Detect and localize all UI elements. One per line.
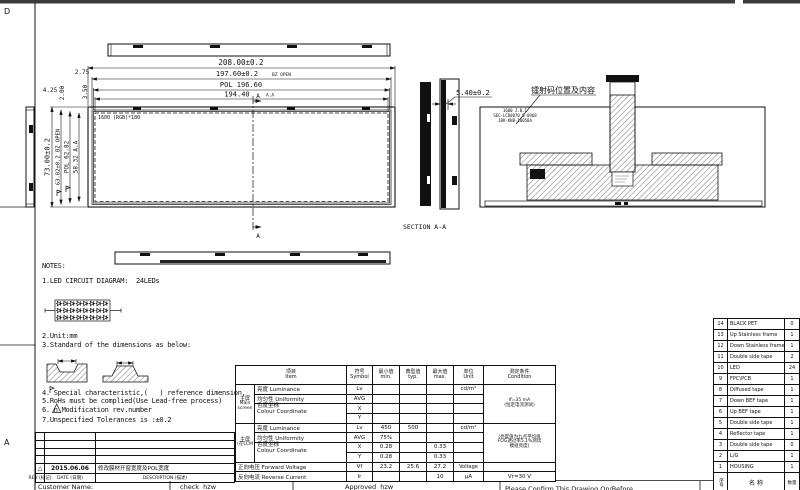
note-led-circuit: 1.LED CIRCUIT DIAGRAM: 24LEDs — [42, 277, 159, 285]
value-cell — [427, 424, 454, 434]
part-no: 7 — [714, 396, 728, 407]
revision-empty-cell — [36, 456, 45, 464]
unit-cell — [454, 404, 484, 414]
dimension-standard-profiles — [47, 359, 148, 382]
symbol-vf: Vf — [347, 463, 373, 473]
revision-empty-cell — [96, 449, 235, 457]
unit-cell — [454, 433, 484, 443]
revision-empty-cell — [96, 433, 235, 441]
header-item: 项目Item — [236, 366, 347, 385]
value-cell — [373, 395, 400, 405]
dim-bz-open-height: 63.82±0.2 BZ OPEN — [56, 129, 62, 185]
value-vf-typ: 25.6 — [400, 463, 427, 473]
chromaticity-en: Colour Coordinate — [257, 449, 307, 455]
revision-empty-cell — [96, 441, 235, 449]
part-qty: 1 — [785, 462, 800, 473]
header-min-en: min. — [380, 375, 391, 380]
revision-empty-cell — [45, 441, 96, 449]
header-condition: 测定条件Condition — [484, 366, 556, 385]
condition-cell — [484, 463, 556, 473]
group2-condition: (亮度值为九点平均值FOG透过率5.1%测试模组亮度) — [484, 424, 556, 463]
unit-voltage: Voltage — [454, 463, 484, 473]
left-side-view — [26, 107, 34, 207]
dim-offset-425: 4.25 — [43, 87, 58, 94]
symbol-lv: Lv — [347, 385, 373, 395]
dim-bz-open-width: 197.60±0.2 — [216, 70, 258, 78]
revision-empty-cell — [45, 449, 96, 457]
zone-letter-a: A — [4, 438, 9, 447]
part-name: Down Stainless frame — [728, 341, 785, 352]
value-cell — [400, 433, 427, 443]
unit-cell — [454, 395, 484, 405]
header-symbol-en: Symbol — [350, 375, 369, 380]
value-avg-min: 75% — [373, 433, 400, 443]
symbol-y: Y — [347, 414, 373, 424]
unit-cell — [454, 443, 484, 453]
revision-date: 2015.06.06 — [45, 464, 96, 473]
revision-header-rev: REV (标记) — [36, 474, 45, 483]
confirm-drawing-note: Please Confirm This Drawing On/Before — [505, 485, 633, 490]
unit-cdm2: cd/m² — [454, 424, 484, 434]
header-max: 最大值max. — [427, 366, 454, 385]
part-qty: 1 — [785, 330, 800, 341]
part-no: 3 — [714, 440, 728, 451]
part-qty: 1 — [785, 451, 800, 462]
dim-offset-275: 2.75 — [75, 69, 90, 76]
note-tolerances: 7.Unspecified Tolerances is :±0.2 — [42, 416, 171, 424]
section-label: SECTION A-A — [403, 223, 446, 231]
zone-letter-d: D — [4, 7, 10, 16]
value-cell — [400, 404, 427, 414]
part-qty: 1 — [785, 429, 800, 440]
part-no: 10 — [714, 363, 728, 374]
unit-cdm2: cd/m² — [454, 385, 484, 395]
part-name: Reflector tape — [728, 429, 785, 440]
value-cell — [400, 385, 427, 395]
part-no: 13 — [714, 330, 728, 341]
part-qty: 0 — [785, 440, 800, 451]
dim-bz-open-width-suffix: BZ OPEN — [272, 72, 291, 78]
row-chromaticity-label: 色度坐标Colour Coordinate — [255, 404, 347, 423]
part-name: FPC\PCB — [728, 374, 785, 385]
row-chromaticity-label: 色度坐标Colour Coordinate — [255, 443, 347, 462]
symbol-y: Y — [347, 453, 373, 463]
part-name: Double side tape — [728, 440, 785, 451]
value-x-min: 0.28 — [373, 443, 400, 453]
part-no: 14 — [714, 319, 728, 330]
section-mark-bottom: A — [256, 233, 260, 240]
row-luminance-label: 亮度 Luminance — [255, 385, 347, 395]
revision-empty-cell — [36, 441, 45, 449]
revision-empty-cell — [36, 433, 45, 441]
header-max-en: max. — [434, 375, 446, 380]
part-no: 9 — [714, 374, 728, 385]
front-view — [88, 107, 395, 207]
dim-aa-width-suffix: A.A — [266, 93, 274, 99]
revision-description: 修改膜材开窗宽度及POL宽度 — [96, 464, 235, 473]
value-lv-min: 450 — [373, 424, 400, 434]
group2-label-en: (在LCM — [237, 443, 253, 448]
note-rohs: 5.RoHs must be complied(Use Lead-free pr… — [42, 397, 222, 405]
part-no: 12 — [714, 341, 728, 352]
revision-header-description: DESCRIPTION (描述) — [96, 474, 235, 483]
value-cell — [427, 385, 454, 395]
value-x-max: 0.33 — [427, 443, 454, 453]
dim-offset-350: 3.50 — [82, 84, 89, 99]
parts-header-name: 名 称 — [728, 473, 785, 490]
dim-outer-width: 208.00±0.2 — [218, 58, 263, 67]
part-qty: 1 — [785, 385, 800, 396]
unit-cell — [454, 414, 484, 424]
header-condition-en: Condition — [508, 375, 532, 380]
group1-label-en: Main screen — [236, 402, 254, 411]
bottom-view — [115, 252, 390, 264]
part-name: LED — [728, 363, 785, 374]
group1-label: 主屏Main screen — [236, 385, 255, 424]
part-name: L/G — [728, 451, 785, 462]
header-item-en: Item — [285, 375, 296, 380]
drawing-sheet: A A 208.00±0.2 197.60±0.2 BZ OPEN POL 19… — [0, 0, 800, 490]
header-typ: 典型值typ. — [400, 366, 427, 385]
value-y-max: 0.33 — [427, 453, 454, 463]
revision-table: △ 2015.06.06 修改膜材开窗宽度及POL宽度 REV (标记) DAT… — [35, 432, 235, 483]
part-no: 8 — [714, 385, 728, 396]
part-name: Down BEF tape — [728, 396, 785, 407]
note-standard-dimensions: 3.Standard of the dimensions as below: — [42, 341, 191, 349]
value-cell — [427, 414, 454, 424]
group2-label: 主屏(在LCM — [236, 424, 255, 463]
chromaticity-en: Colour Coordinate — [257, 410, 307, 416]
part-no: 11 — [714, 352, 728, 363]
resolution-label: 1600 (RGB)*180 — [98, 115, 140, 121]
group1-condition-line2: (恒定电流测试) — [504, 404, 535, 409]
parts-header-no: 序号 — [714, 473, 728, 490]
header-unit: 单位Unit — [454, 366, 484, 385]
part-qty: 0 — [785, 319, 800, 330]
value-cell — [400, 414, 427, 424]
dim-pol-width: POL 196.60 — [220, 81, 262, 89]
part-name: HOUSING — [728, 462, 785, 473]
part-qty: 1 — [785, 418, 800, 429]
dim-thickness: 5.40±0.2 — [456, 89, 490, 97]
symbol-avg: AVG — [347, 395, 373, 405]
symbol-lv: Lv — [347, 424, 373, 434]
dim-outer-height: 73.00±0.2 — [44, 138, 52, 176]
part-qty: 24 — [785, 363, 800, 374]
revision-empty-cell — [45, 456, 96, 464]
notes-title: NOTES: — [42, 262, 66, 270]
header-unit-en: Unit — [463, 375, 473, 380]
parts-table: 14BLACK PET0 13Up Stainless frame1 12Dow… — [713, 318, 800, 490]
symbol-x: X — [347, 443, 373, 453]
group1-condition: If=35 mA(恒定电流测试) — [484, 385, 556, 424]
unit-cell — [454, 453, 484, 463]
section-line — [253, 96, 261, 232]
value-cell — [427, 433, 454, 443]
condition-vr: Vr=30 V — [484, 472, 556, 482]
value-cell — [373, 385, 400, 395]
approved-signature: Approved hzw — [345, 483, 393, 490]
header-min: 最小值min. — [373, 366, 400, 385]
laser-code-label: 镭射码位置及内容 — [531, 85, 595, 95]
header-symbol: 符号Symbol — [347, 366, 373, 385]
revision-marker: △ — [36, 464, 45, 473]
symbol-avg: AVG — [347, 433, 373, 443]
part-name: Double side tape — [728, 352, 785, 363]
part-name: Double side tape — [728, 418, 785, 429]
header-typ-en: typ. — [408, 375, 418, 380]
part-name: BLACK PET — [728, 319, 785, 330]
dim-pol-height: POL 62.82 — [64, 140, 71, 173]
part-qty: 1 — [785, 407, 800, 418]
part-no: 1 — [714, 462, 728, 473]
dim-offset-200: 2.00 — [59, 85, 66, 100]
symbol-ir: Ir — [347, 472, 373, 482]
characteristics-table: 项目Item 符号Symbol 最小值min. 典型值typ. 最大值max. … — [235, 365, 556, 482]
part-name: Up Stainless frame — [728, 330, 785, 341]
row-forward-voltage-label: 正向电压 Forward Voltage — [236, 463, 347, 473]
revision-empty-cell — [96, 456, 235, 464]
value-cell — [373, 404, 400, 414]
customer-name-label: Customer Name: — [38, 483, 93, 490]
value-cell — [400, 443, 427, 453]
part-qty: 1 — [785, 396, 800, 407]
part-name: Diffused tape — [728, 385, 785, 396]
value-cell — [400, 395, 427, 405]
special-characteristic-flag-icon — [57, 190, 61, 196]
value-cell — [427, 404, 454, 414]
revision-empty-cell — [45, 433, 96, 441]
value-lv-typ: 500 — [400, 424, 427, 434]
check-signature: check hzw — [180, 483, 216, 490]
value-ir-max: 10 — [427, 472, 454, 482]
part-no: 6 — [714, 407, 728, 418]
dim-aa-height: 58.32 A.A — [73, 140, 80, 173]
part-name: Up BEF tape — [728, 407, 785, 418]
revision-header-date: DATE (日期) — [45, 474, 96, 483]
top-view — [108, 44, 390, 56]
note-unit: 2.Unit:mm — [42, 332, 77, 340]
revision-empty-cell — [36, 449, 45, 457]
note-special-characteristic: 4. Special characteristic,( ) reference … — [42, 389, 246, 397]
part-qty: 1 — [785, 374, 800, 385]
value-cell — [427, 395, 454, 405]
value-vf-min: 23.2 — [373, 463, 400, 473]
part-no: 2 — [714, 451, 728, 462]
part-no: 5 — [714, 418, 728, 429]
note-modification: 6. n Modification rev.number — [42, 406, 152, 414]
part-qty: 2 — [785, 352, 800, 363]
row-luminance-label: 亮度 Luminance — [255, 424, 347, 434]
back-view — [480, 75, 765, 207]
symbol-x: X — [347, 404, 373, 414]
value-vf-max: 27.2 — [427, 463, 454, 473]
part-qty: 1 — [785, 341, 800, 352]
value-y-min: 0.28 — [373, 453, 400, 463]
laser-code-line-3: JBK-KNB-10058A — [498, 118, 532, 123]
row-reverse-current-label: 反向电流 Reverse Current — [236, 472, 347, 482]
dim-aa-width: 194.40 — [224, 91, 249, 99]
parts-header-qty: 数量 — [785, 473, 800, 490]
part-no: 4 — [714, 429, 728, 440]
unit-ua: μA — [454, 472, 484, 482]
value-cell — [400, 472, 427, 482]
group2-condition-line3: 模组亮度) — [510, 445, 530, 450]
led-circuit-diagram — [45, 300, 121, 321]
value-cell — [373, 414, 400, 424]
special-characteristic-flag-icon — [66, 186, 70, 192]
value-cell — [400, 453, 427, 463]
value-cell — [373, 472, 400, 482]
